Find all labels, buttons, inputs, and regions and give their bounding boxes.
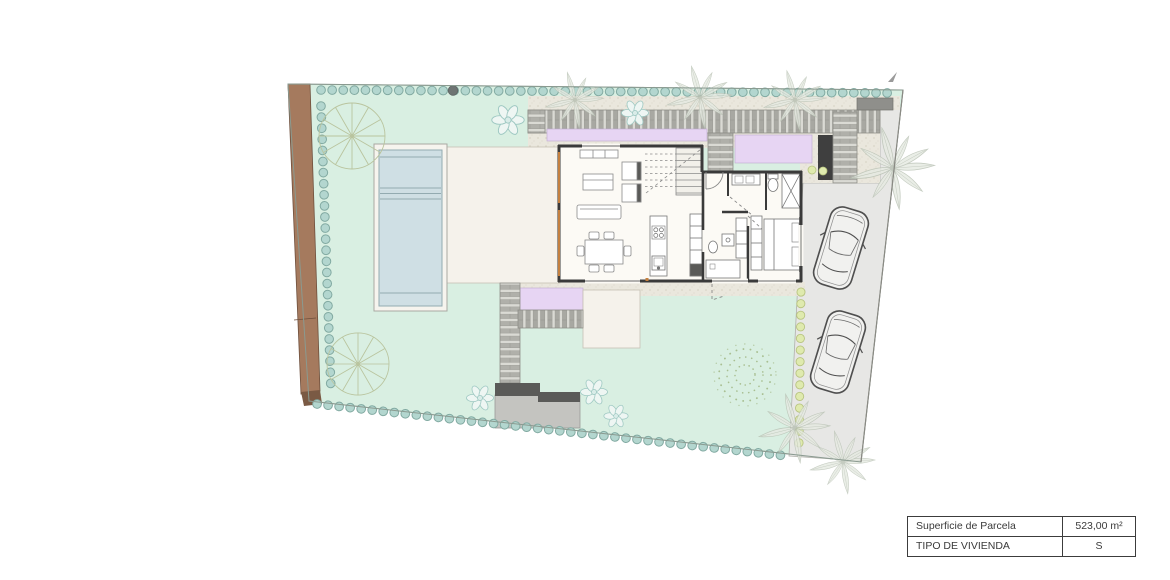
swimming-pool: [374, 144, 447, 311]
page: Superficie de Parcela 523,00 m² TIPO DE …: [0, 0, 1170, 580]
dining-table: [585, 240, 623, 264]
info-table: Superficie de Parcela 523,00 m² TIPO DE …: [907, 516, 1136, 557]
north-arrow-icon: [888, 72, 897, 82]
pillow: [792, 223, 799, 242]
toilet: [709, 241, 718, 253]
parcel-area-value: 523,00 m²: [1062, 517, 1135, 536]
round-tree: [327, 333, 389, 395]
entry-steps: [708, 133, 733, 171]
dwelling-type-value: S: [1062, 537, 1135, 556]
chair: [624, 246, 631, 256]
table-row: Superficie de Parcela 523,00 m²: [908, 517, 1135, 536]
washbasin: [722, 234, 734, 246]
terrace-lower: [583, 290, 640, 348]
dark-hedge-dot: [448, 86, 458, 96]
coffee-table: [583, 174, 613, 190]
chair: [589, 232, 599, 239]
chair: [589, 265, 599, 272]
entry-steps-right: [833, 112, 857, 183]
chair: [604, 265, 614, 272]
dwelling-type-label: TIPO DE VIVIENDA: [908, 537, 1062, 556]
bedroom: [751, 216, 801, 272]
toilet: [768, 179, 778, 192]
parcel-area-label: Superficie de Parcela: [908, 517, 1062, 536]
round-tree: [319, 103, 385, 169]
chair: [604, 232, 614, 239]
pillow: [792, 247, 799, 266]
chair: [577, 246, 584, 256]
terrace-main: [443, 147, 560, 283]
site-plan: [0, 0, 1170, 580]
sofa: [577, 205, 621, 219]
utility-box: [857, 98, 893, 110]
table-row: TIPO DE VIVIENDA S: [908, 536, 1135, 556]
bath-cabinet: [736, 218, 747, 258]
